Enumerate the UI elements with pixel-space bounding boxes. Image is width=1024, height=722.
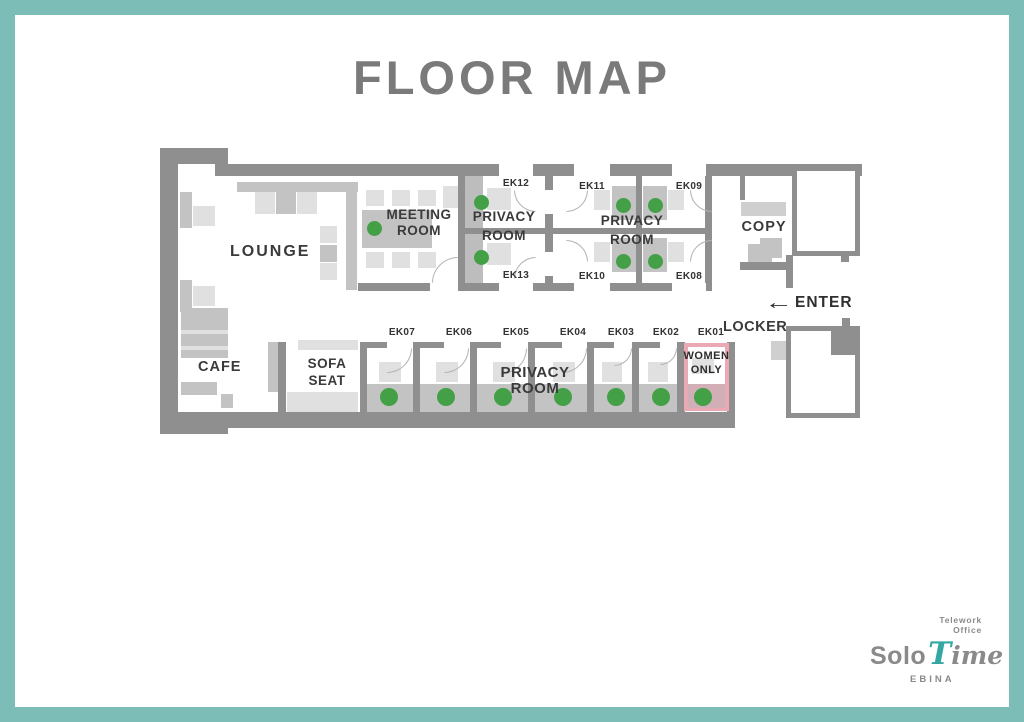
door-gap	[499, 283, 533, 291]
reserved-seat-dot	[652, 388, 670, 406]
wall-tab	[842, 318, 850, 326]
meeting-chair	[392, 252, 410, 268]
lounge-desk	[180, 192, 192, 228]
door-arc	[444, 348, 469, 373]
wall-segment	[160, 412, 228, 434]
sofa-seat-label: SOFA SEAT	[294, 355, 360, 389]
door-arc	[387, 348, 412, 373]
meeting-chair	[443, 186, 459, 208]
door-arc	[660, 348, 677, 365]
privacy-desk	[487, 243, 511, 265]
privacy-chair	[594, 190, 610, 210]
logo-solo: Solo	[870, 642, 926, 671]
seat-label-ek04: EK04	[556, 327, 590, 338]
privacy-chair	[668, 190, 684, 210]
seat-label-ek09: EK09	[672, 181, 706, 192]
reserved-seat-dot	[474, 250, 489, 265]
door-arc	[566, 240, 588, 262]
privacy-room-lower-label: PRIVACY ROOM	[476, 365, 594, 397]
enter-arrow-icon: ←	[764, 291, 792, 315]
enter-sign: ← ENTER	[768, 291, 853, 315]
door-gap	[672, 283, 706, 291]
floor-map-page: FLOOR MAP	[0, 0, 1024, 722]
reserved-seat-dot	[648, 254, 663, 269]
reserved-seat-dot	[437, 388, 455, 406]
wall-segment	[477, 342, 501, 348]
seat-label-ek05: EK05	[499, 327, 533, 338]
wall-segment	[178, 412, 735, 428]
meeting-room-label: MEETING ROOM	[377, 207, 461, 239]
meeting-chair	[418, 252, 436, 268]
seat-label-ek12: EK12	[499, 178, 533, 189]
wall-segment	[740, 176, 745, 200]
logo-ime: ime	[951, 641, 1003, 670]
door-arc	[690, 240, 712, 262]
privacy-room-small-label: PRIVACY ROOM	[463, 207, 545, 245]
lounge-table	[276, 189, 296, 214]
wall-notch	[831, 326, 860, 355]
seat-label-ek11: EK11	[574, 181, 610, 192]
women-only-label: WOMEN ONLY	[682, 349, 731, 377]
door-gap	[545, 252, 553, 276]
lounge-table	[255, 192, 275, 214]
seat-label-ek10: EK10	[574, 271, 610, 282]
lounge-chair	[193, 206, 215, 226]
door-gap	[499, 164, 533, 176]
door-gap	[430, 283, 458, 291]
meeting-chair	[392, 190, 410, 206]
logo-tagline-line1: Telework	[862, 615, 982, 625]
seat-label-ek06: EK06	[442, 327, 476, 338]
lounge-sofa	[320, 226, 337, 243]
reserved-seat-dot	[607, 388, 625, 406]
wall-segment	[360, 342, 367, 415]
seat-label-ek08: EK08	[672, 271, 706, 282]
door-arc	[614, 348, 632, 366]
copy-shelf	[741, 202, 786, 216]
privacy-room-large-label: PRIVACY ROOM	[588, 211, 676, 249]
reserved-seat-dot	[380, 388, 398, 406]
sofa-area-wall	[268, 342, 278, 392]
logo-tagline: Telework Office	[862, 615, 990, 635]
door-arc	[690, 190, 712, 212]
meeting-chair	[366, 252, 384, 268]
copy-label: COPY	[739, 220, 789, 235]
wall-segment	[740, 262, 787, 270]
wall-segment	[278, 342, 286, 413]
wall-segment	[413, 342, 420, 415]
logo-tagline-line2: Office	[862, 625, 982, 635]
enter-label: ENTER	[795, 294, 853, 312]
door-arc	[566, 190, 588, 212]
wall-segment	[786, 255, 793, 288]
door-gap	[574, 283, 610, 291]
storage-room	[792, 166, 860, 256]
meeting-chair	[418, 190, 436, 206]
wall-segment	[639, 342, 660, 348]
sofa-seat-line1: SOFA	[294, 355, 360, 372]
sofa-seat-line2: SEAT	[294, 372, 360, 389]
copy-printer	[760, 238, 782, 258]
booth-chair	[648, 362, 668, 382]
lounge-sofa	[320, 263, 337, 280]
wall-segment	[160, 148, 178, 434]
sofa-back	[298, 340, 358, 350]
locker-label: LOCKER	[723, 320, 787, 335]
cafe-counter	[181, 382, 217, 395]
privacy-large-line2: ROOM	[588, 230, 676, 249]
lounge-right-wall	[346, 182, 357, 290]
privacy-small-line1: PRIVACY	[463, 207, 545, 226]
reserved-seat-dot	[616, 254, 631, 269]
logo-t: T	[928, 636, 951, 672]
women-only-line1: WOMEN	[682, 349, 731, 363]
meeting-room-line2: ROOM	[377, 223, 461, 239]
seat-label-ek03: EK03	[604, 327, 638, 338]
door-gap	[574, 164, 610, 176]
cafe-counter	[221, 394, 233, 408]
wall-segment	[594, 342, 614, 348]
women-only-line2: ONLY	[682, 363, 731, 377]
brand-logo: Telework Office Solo T ime EBINA	[862, 615, 990, 685]
seat-label-ek01: EK01	[696, 327, 726, 338]
lounge-sofa	[320, 245, 337, 262]
logo-location: EBINA	[910, 674, 990, 685]
lounge-top-counter	[237, 182, 358, 192]
privacy-small-line2: ROOM	[463, 226, 545, 245]
wall-segment	[215, 164, 225, 176]
seat-label-ek02: EK02	[649, 327, 683, 338]
wall-segment	[535, 342, 562, 348]
wall-segment	[360, 342, 387, 348]
stairs-stripe	[181, 330, 228, 334]
stairs-stripe	[181, 346, 228, 350]
wall-segment	[358, 283, 712, 291]
lounge-chair	[193, 286, 215, 306]
seat-label-ek13: EK13	[499, 270, 533, 281]
legend: 女性専用エリア 要予約 RESERVED 要予約席	[0, 460, 1024, 520]
wall-segment	[420, 342, 444, 348]
lounge-label: LOUNGE	[230, 244, 310, 261]
wall-segment	[225, 164, 862, 176]
privacy-large-line1: PRIVACY	[588, 211, 676, 230]
reserved-seat-dot	[694, 388, 712, 406]
seat-label-ek07: EK07	[385, 327, 419, 338]
wall-tab	[841, 254, 849, 262]
meeting-chair	[366, 190, 384, 206]
meeting-room-line1: MEETING	[377, 207, 461, 223]
wall-segment	[632, 342, 639, 415]
door-gap	[672, 164, 706, 176]
cafe-label: CAFE	[198, 360, 241, 375]
door-gap	[545, 190, 553, 214]
lounge-bench	[287, 392, 358, 412]
logo-wordmark: Solo T ime	[870, 636, 990, 672]
lounge-table	[297, 192, 317, 214]
